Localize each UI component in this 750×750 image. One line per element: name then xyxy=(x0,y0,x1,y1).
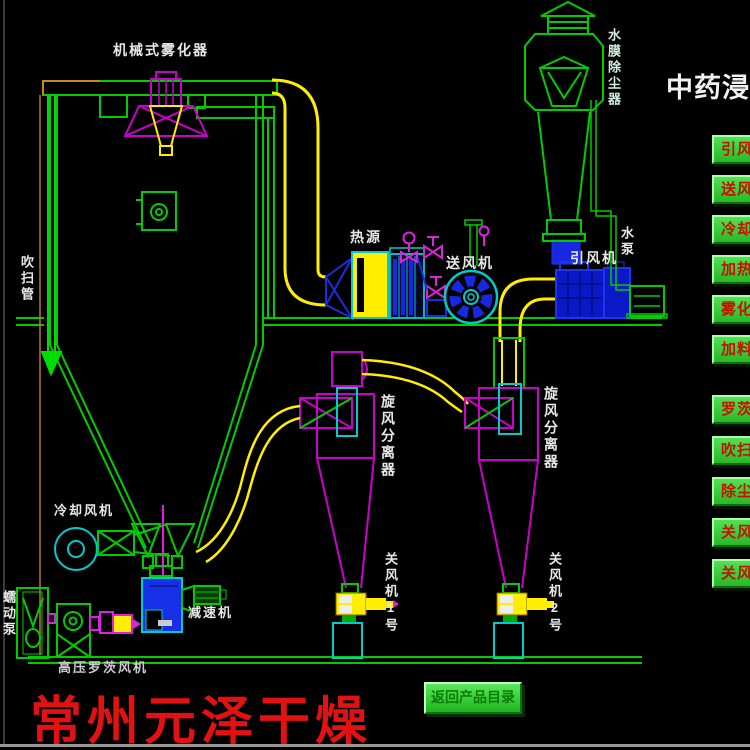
atomizer-assembly xyxy=(125,72,207,155)
airlock-2 xyxy=(494,584,554,658)
hot-air-duct xyxy=(272,80,352,318)
heat-source-label: 热源 xyxy=(350,229,382,245)
induced-draft-fan-label: 引风机 xyxy=(570,250,618,266)
product-pipes xyxy=(196,360,468,562)
side-button-cooling[interactable]: 冷却 xyxy=(712,215,750,244)
cyclone-2 xyxy=(465,338,538,588)
back-to-catalog-button[interactable]: 返回产品目录 xyxy=(424,682,522,714)
side-button-feeding[interactable]: 加料 xyxy=(712,335,750,364)
side-button-airlock-2[interactable]: 关风 xyxy=(712,559,750,588)
cad-drawing-screen: 机械式雾化器 水膜除尘器 吹扫管 热源 送风机 引风机 水泵 旋风分离器 旋风分… xyxy=(0,0,750,750)
peristaltic-pump xyxy=(17,588,55,658)
roots-blower-label: 高压罗茨风机 xyxy=(58,661,148,676)
roots-blower xyxy=(57,604,146,657)
cyclone-1-label: 旋风分离器 xyxy=(381,394,395,479)
side-button-airlock-1[interactable]: 关风 xyxy=(712,518,750,547)
side-button-supply-fan[interactable]: 送风 xyxy=(712,175,750,204)
company-watermark: 常州元泽干燥 xyxy=(30,679,372,750)
airlock-2-label: 关风机2号 xyxy=(548,552,561,634)
purge-pipe xyxy=(42,95,61,374)
page-title: 中药浸膏 xyxy=(666,66,750,105)
side-button-dedusting[interactable]: 除尘 xyxy=(712,477,750,506)
supply-fan xyxy=(445,271,497,323)
purge-pipe-label: 吹扫管 xyxy=(20,255,33,303)
cyclone-1 xyxy=(300,352,374,588)
supply-fan-label: 送风机 xyxy=(446,255,494,271)
reducer-label: 减速机 xyxy=(188,606,233,621)
side-button-induced-fan[interactable]: 引风 xyxy=(712,135,750,164)
atomizer-label: 机械式雾化器 xyxy=(113,42,209,58)
process-diagram xyxy=(0,0,750,750)
side-button-heating[interactable]: 加热 xyxy=(712,255,750,284)
dust-collector-label: 水膜除尘器 xyxy=(607,28,620,108)
airlock-1-label: 关风机1号 xyxy=(384,552,397,634)
water-pump-label: 水泵 xyxy=(620,226,633,258)
cooling-fan-label: 冷却风机 xyxy=(54,504,114,519)
side-button-roots[interactable]: 罗茨 xyxy=(712,395,750,424)
cyclone-2-label: 旋风分离器 xyxy=(544,386,558,471)
peristaltic-pump-label: 蠕动泵 xyxy=(2,590,15,638)
side-button-purge[interactable]: 吹扫 xyxy=(712,436,750,465)
side-button-atomizing[interactable]: 雾化 xyxy=(712,295,750,324)
